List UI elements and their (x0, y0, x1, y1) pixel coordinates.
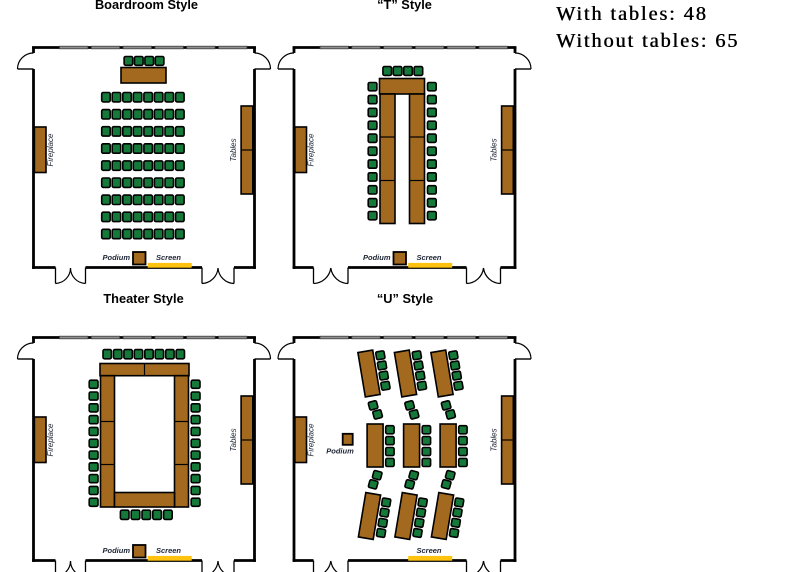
svg-text:Fireplace: Fireplace (307, 133, 316, 166)
svg-text:Screen: Screen (416, 546, 441, 555)
svg-text:Podium: Podium (326, 447, 354, 456)
svg-text:“U” Style: “U” Style (377, 291, 433, 306)
svg-text:Podium: Podium (103, 546, 131, 555)
svg-text:Fireplace: Fireplace (46, 423, 55, 456)
svg-text:Tables: Tables (489, 138, 498, 161)
svg-text:Screen: Screen (416, 253, 441, 262)
svg-text:Fireplace: Fireplace (307, 423, 316, 456)
svg-text:Theater Style: Theater Style (103, 291, 183, 306)
svg-text:Boardroom Style: Boardroom Style (95, 0, 198, 12)
svg-text:Podium: Podium (363, 253, 391, 262)
svg-text:Podium: Podium (103, 253, 131, 262)
svg-text:Screen: Screen (156, 253, 181, 262)
svg-text:Fireplace: Fireplace (46, 133, 55, 166)
svg-text:Tables: Tables (229, 428, 238, 451)
svg-text:Tables: Tables (229, 138, 238, 161)
svg-text:Screen: Screen (156, 546, 181, 555)
svg-text:Tables: Tables (489, 428, 498, 451)
svg-text:“T” Style: “T” Style (377, 0, 432, 12)
